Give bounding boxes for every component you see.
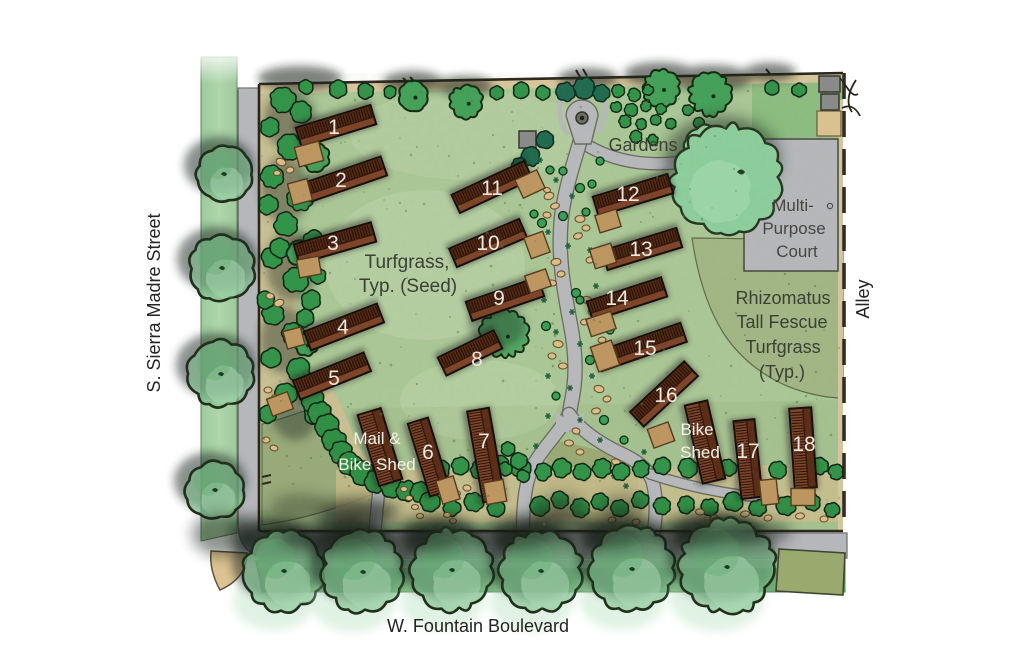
svg-text:Gardens: Gardens (608, 135, 677, 155)
svg-text:(Typ.): (Typ.) (759, 362, 805, 382)
svg-text:Court: Court (776, 242, 818, 261)
svg-text:Bike: Bike (680, 420, 713, 439)
svg-text:Bike Shed: Bike Shed (338, 455, 416, 474)
svg-text:W. Fountain Boulevard: W. Fountain Boulevard (387, 616, 569, 636)
svg-text:Rhizomatus: Rhizomatus (735, 288, 830, 308)
svg-text:Turfgrass: Turfgrass (745, 337, 820, 357)
svg-text:Alley: Alley (853, 279, 873, 318)
svg-text:Multi-: Multi- (772, 196, 814, 215)
svg-text:Purpose: Purpose (762, 219, 825, 238)
svg-text:Shed: Shed (680, 443, 720, 462)
svg-text:Turfgrass,: Turfgrass, (365, 252, 450, 273)
svg-text:Tall Fescue: Tall Fescue (736, 312, 827, 332)
svg-text:Mail &: Mail & (353, 429, 401, 448)
svg-text:S. Sierra Madre Street: S. Sierra Madre Street (144, 213, 164, 392)
svg-text:Typ. (Seed): Typ. (Seed) (359, 276, 457, 297)
